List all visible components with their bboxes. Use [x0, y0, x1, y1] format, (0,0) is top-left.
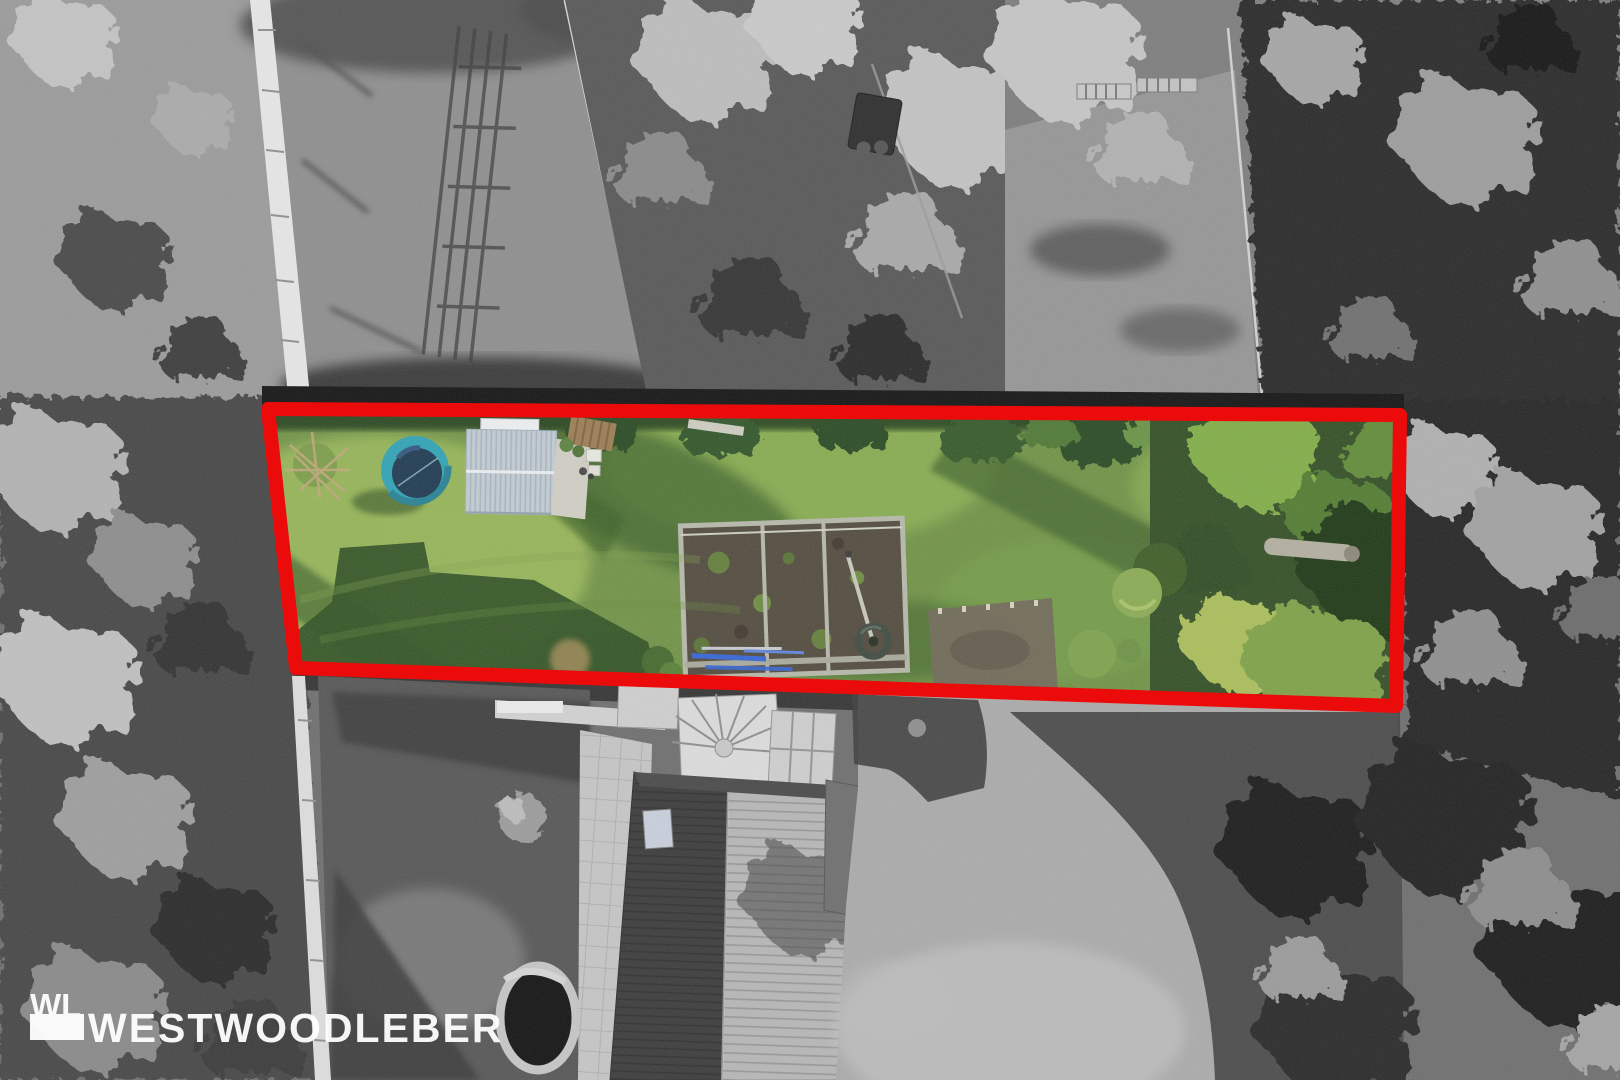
photo-grain: [0, 0, 1620, 1080]
brand-name: WESTWOODLEBER: [88, 1005, 503, 1051]
brand-logo: WL: [30, 987, 84, 1040]
brand-logo-block: [30, 1014, 84, 1040]
aerial-photo: WL WESTWOODLEBER: [0, 0, 1620, 1080]
